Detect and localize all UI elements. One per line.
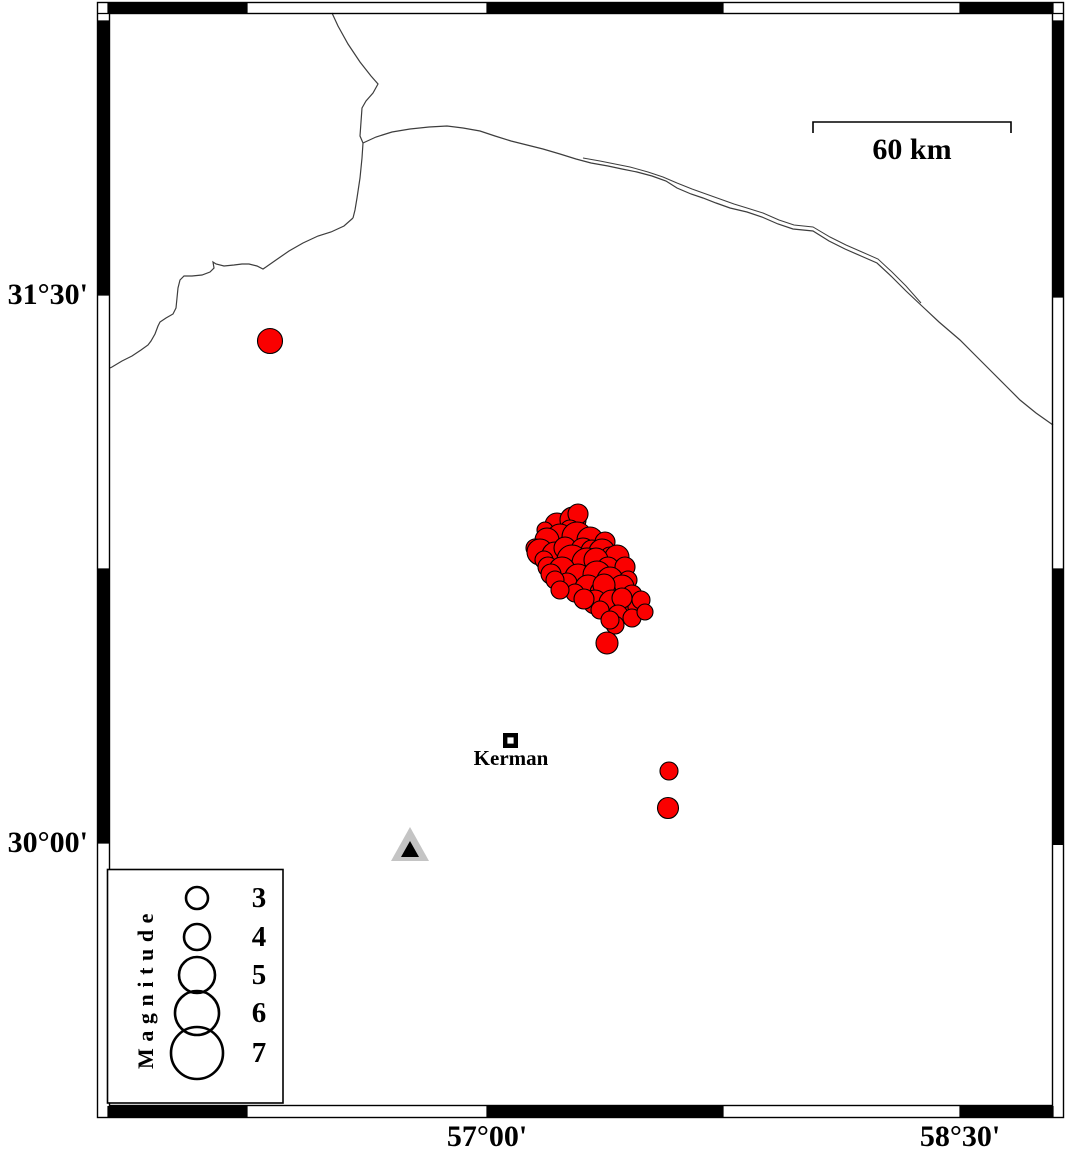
axis-label-lat-31-30: 31°30'	[0, 277, 88, 313]
legend-mag-6: 6	[238, 993, 280, 1033]
city-label: Kerman	[441, 746, 581, 771]
earthquake-marker	[551, 581, 569, 599]
axis-label-lon-57-00: 57°00'	[387, 1120, 587, 1154]
earthquake-marker	[660, 762, 678, 780]
legend-title: Magnitude	[133, 907, 159, 1069]
earthquake-marker	[658, 798, 679, 819]
road-line-main	[363, 126, 1053, 425]
border-line	[332, 13, 378, 218]
scale-bar-label: 60 km	[812, 133, 1012, 167]
legend-mag-4: 4	[238, 917, 280, 957]
legend-mag-5: 5	[238, 955, 280, 995]
legend-mag-7: 7	[238, 1033, 280, 1073]
map-canvas	[0, 0, 1066, 1154]
legend-mag-3: 3	[238, 878, 280, 918]
earthquake-marker	[258, 329, 283, 354]
coast-line	[110, 218, 353, 368]
earthquake-marker	[574, 589, 594, 609]
earthquake-marker	[596, 632, 618, 654]
city-square-marker	[505, 735, 516, 746]
earthquake-markers	[258, 329, 679, 819]
axis-label-lat-30-00: 30°00'	[0, 825, 88, 861]
map-line-layer	[110, 13, 1053, 425]
axis-label-lon-58-30: 58°30'	[860, 1120, 1060, 1154]
earthquake-marker	[637, 604, 653, 620]
road-line-pair	[583, 158, 921, 303]
earthquake-marker	[601, 611, 619, 629]
scale-bar-bracket	[813, 122, 1011, 133]
station-triangle-icon	[391, 827, 429, 861]
seismicity-map: 31°30' 30°00' 57°00' 58°30' 60 km Kerman…	[0, 0, 1066, 1154]
